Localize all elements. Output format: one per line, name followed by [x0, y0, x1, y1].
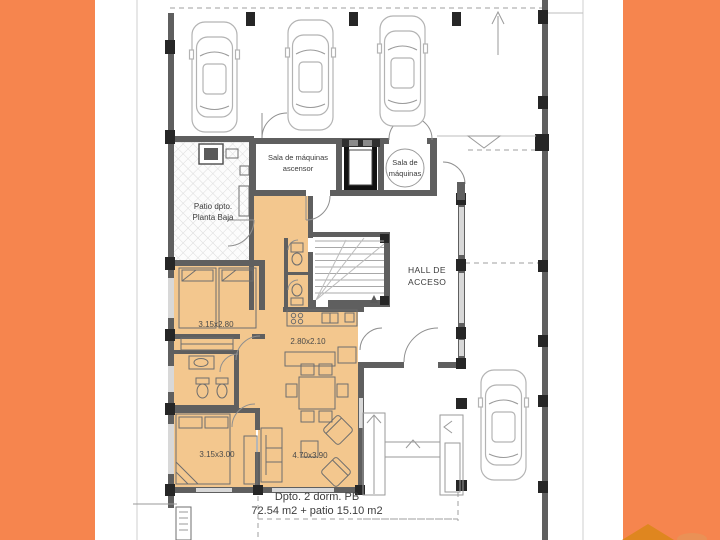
- elevator: [342, 139, 380, 190]
- kitchen-dimension: 2.80x2.10: [290, 337, 326, 346]
- machine-room-elevator-label-line1: Sala de máquinas: [268, 153, 328, 162]
- machine-room-label-line2: máquinas: [389, 169, 422, 178]
- meter-box: [133, 504, 191, 540]
- patio-label-line1: Patio dpto.: [194, 202, 232, 211]
- bedroom1-dimension: 3.15x2.80: [198, 320, 234, 329]
- living-dimension: 4.70x3.90: [292, 451, 328, 460]
- machine-symbol-circle: [386, 149, 424, 187]
- left-orange-band: [0, 0, 95, 540]
- floor-plan-page: Sala de máquinas ascensor Sala de máquin…: [0, 0, 720, 540]
- hall-label-line1: HALL DE: [408, 265, 446, 275]
- hall-label-line2: ACCESO: [408, 277, 446, 287]
- machine-room-elevator-label-line2: ascensor: [283, 164, 314, 173]
- driveway-arrow: [492, 12, 504, 55]
- machine-room-label-line1: Sala de: [392, 158, 417, 167]
- walkways: [363, 413, 463, 495]
- floor-plan-drawing: Sala de máquinas ascensor Sala de máquin…: [0, 0, 720, 540]
- bedroom2-dimension: 3.15x3.00: [199, 450, 235, 459]
- patio-label-line2: Planta Baja: [193, 213, 234, 222]
- right-orange-band: [623, 0, 720, 540]
- summary-line2: 72.54 m2 + patio 15.10 m2: [251, 505, 382, 517]
- stairs: [315, 238, 384, 307]
- summary-line1: Dpto. 2 dorm. PB: [275, 491, 359, 503]
